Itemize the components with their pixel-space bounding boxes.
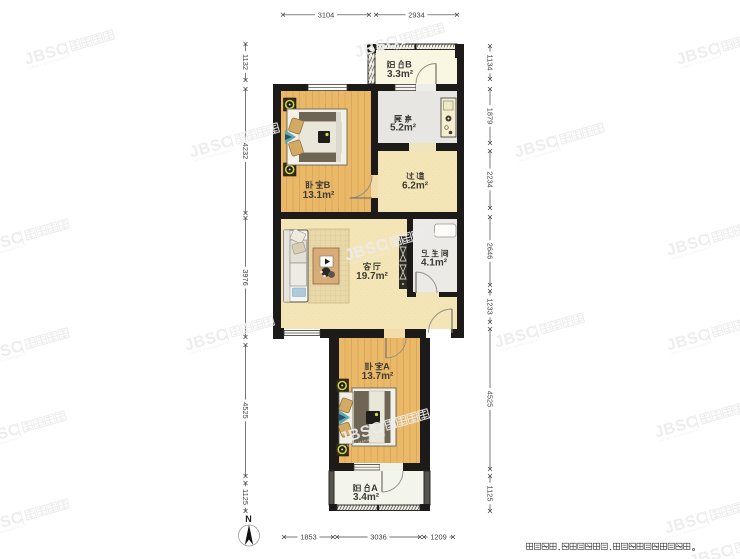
svg-text:1853: 1853: [300, 533, 316, 542]
svg-text:2646: 2646: [486, 243, 495, 259]
svg-text:6.2m²: 6.2m²: [402, 181, 429, 192]
svg-text:N: N: [245, 514, 252, 524]
svg-text:13.7m²: 13.7m²: [362, 371, 394, 382]
svg-text:3036: 3036: [370, 533, 386, 542]
svg-text:4.1m²: 4.1m²: [421, 258, 448, 269]
svg-text:1233: 1233: [486, 298, 495, 314]
svg-text:13.1m²: 13.1m²: [303, 190, 335, 201]
svg-text:19.7m²: 19.7m²: [356, 271, 388, 282]
svg-text:1209: 1209: [430, 533, 446, 542]
svg-text:4232: 4232: [241, 143, 250, 159]
svg-text:JBSC: JBSC: [688, 542, 736, 559]
svg-text:5.2m²: 5.2m²: [390, 123, 417, 134]
svg-text:3.3m²: 3.3m²: [387, 69, 414, 80]
svg-text:3.4m²: 3.4m²: [353, 492, 380, 503]
svg-text:4525: 4525: [486, 391, 495, 407]
svg-text:3104: 3104: [318, 10, 334, 19]
svg-text:1134: 1134: [486, 55, 495, 71]
svg-text:1879: 1879: [486, 108, 495, 124]
svg-text:1125: 1125: [486, 486, 495, 502]
svg-text:3976: 3976: [241, 269, 250, 285]
svg-text:2934: 2934: [408, 10, 424, 19]
svg-text:4525: 4525: [241, 402, 250, 418]
svg-text:1132: 1132: [241, 54, 250, 70]
svg-text:2234: 2234: [486, 171, 495, 187]
svg-text:1125: 1125: [241, 489, 250, 505]
svg-text:B: B: [324, 180, 331, 190]
